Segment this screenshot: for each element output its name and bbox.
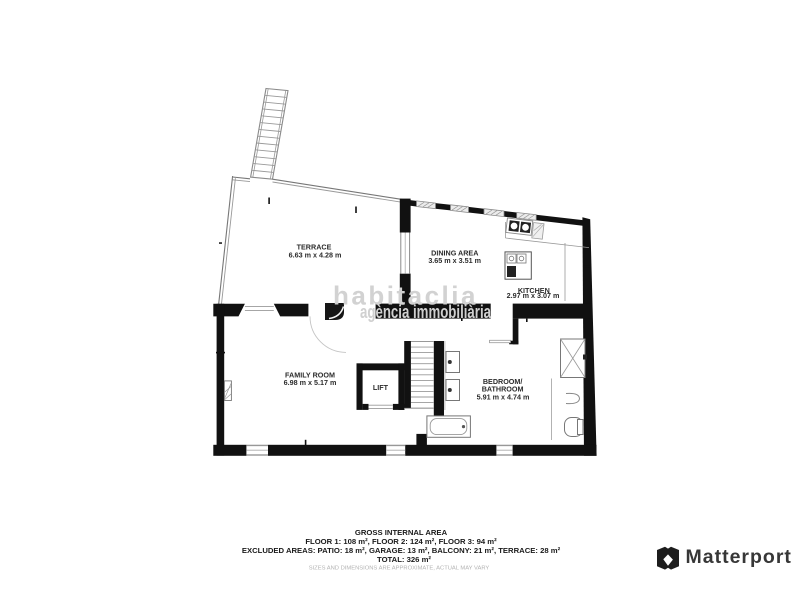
svg-text:LIFT: LIFT — [373, 383, 389, 392]
svg-text:5.91 m x 4.74 m: 5.91 m x 4.74 m — [477, 392, 530, 401]
svg-text:6.98 m x 5.17 m: 6.98 m x 5.17 m — [284, 378, 337, 387]
svg-text:TOTAL: 326 m²: TOTAL: 326 m² — [377, 555, 431, 564]
svg-text:Matterport: Matterport — [686, 546, 792, 568]
svg-text:EXCLUDED AREAS: PATIO: 18 m²,: EXCLUDED AREAS: PATIO: 18 m², GARAGE: 13… — [242, 546, 561, 555]
svg-text:3.65 m x 3.51 m: 3.65 m x 3.51 m — [428, 256, 481, 265]
svg-text:FLOOR 1: 108 m², FLOOR 2: 124: FLOOR 1: 108 m², FLOOR 2: 124 m², FLOOR … — [305, 537, 497, 546]
svg-text:agència immobiliària: agència immobiliària — [360, 301, 492, 322]
svg-text:SIZES AND DIMENSIONS ARE APPRO: SIZES AND DIMENSIONS ARE APPROXIMATE, AC… — [309, 566, 490, 572]
svg-text:GROSS INTERNAL AREA: GROSS INTERNAL AREA — [355, 528, 448, 537]
svg-text:6.63 m x 4.28 m: 6.63 m x 4.28 m — [289, 251, 342, 260]
svg-text:2.97 m x 3.07 m: 2.97 m x 3.07 m — [507, 291, 560, 300]
